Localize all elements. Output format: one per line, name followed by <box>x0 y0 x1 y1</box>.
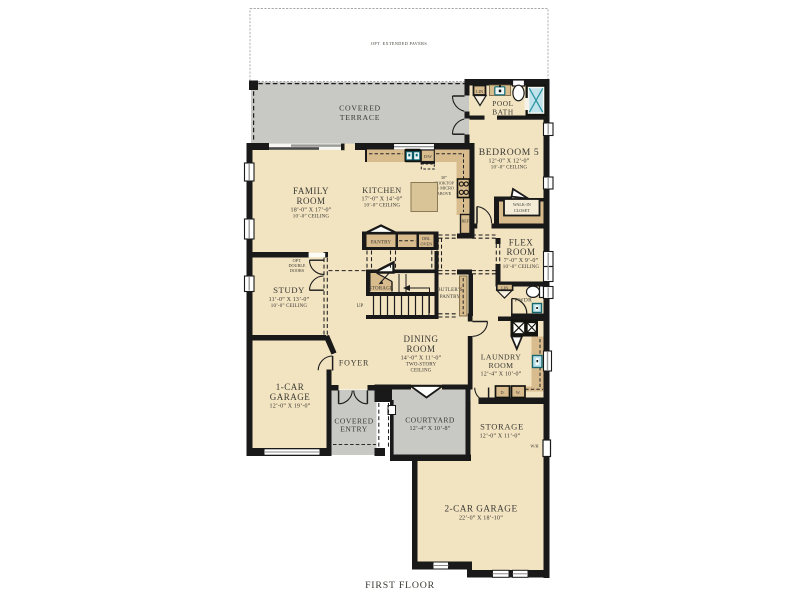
svg-text:BUTLER’S: BUTLER’S <box>437 288 463 293</box>
svg-text:12’-4” X 10’-8”: 12’-4” X 10’-8” <box>410 426 451 432</box>
svg-text:10’-0” CEILING: 10’-0” CEILING <box>503 265 540 270</box>
svg-text:10’-0” CEILING: 10’-0” CEILING <box>293 215 330 220</box>
svg-text:WALK-IN: WALK-IN <box>513 202 531 207</box>
svg-text:PANTRY: PANTRY <box>371 241 392 246</box>
svg-text:STORAGE: STORAGE <box>480 422 524 432</box>
svg-text:KITCHEN: KITCHEN <box>362 186 401 195</box>
svg-text:BATH: BATH <box>492 108 514 117</box>
svg-text:LIN: LIN <box>476 89 483 94</box>
svg-text:DOORS: DOORS <box>290 268 305 273</box>
svg-text:COURTYARD: COURTYARD <box>405 416 455 425</box>
svg-text:STUDY: STUDY <box>273 285 305 295</box>
svg-text:ROOM: ROOM <box>406 344 435 354</box>
svg-text:CEILING: CEILING <box>410 369 431 374</box>
svg-text:12’-4” X 10’-0”: 12’-4” X 10’-0” <box>481 372 522 378</box>
svg-text:22’-0” X 18’-10”: 22’-0” X 18’-10” <box>459 516 503 522</box>
svg-text:D.: D. <box>500 390 504 395</box>
svg-text:D/W: D/W <box>424 154 432 159</box>
svg-text:W/H: W/H <box>530 444 538 449</box>
svg-text:30”: 30” <box>441 175 447 180</box>
svg-text:FIRST FLOOR: FIRST FLOOR <box>365 580 435 591</box>
svg-text:10’-0” CEILING: 10’-0” CEILING <box>271 304 308 309</box>
svg-text:STORAGE: STORAGE <box>369 287 393 292</box>
svg-text:14’-0” X 11’-0”: 14’-0” X 11’-0” <box>401 356 442 362</box>
svg-text:ROOM: ROOM <box>506 247 535 257</box>
svg-text:ROOM: ROOM <box>489 361 514 370</box>
svg-text:DBL: DBL <box>422 236 431 241</box>
svg-text:12’-0” X 19’-0”: 12’-0” X 19’-0” <box>270 404 311 410</box>
svg-text:GARAGE: GARAGE <box>270 392 311 402</box>
svg-text:12’-0” X 12’-0”: 12’-0” X 12’-0” <box>489 159 530 165</box>
svg-text:CLOSET: CLOSET <box>514 208 530 213</box>
svg-text:TERRACE: TERRACE <box>340 113 380 122</box>
svg-text:PANTRY: PANTRY <box>440 295 461 300</box>
svg-text:DINING: DINING <box>404 334 439 344</box>
svg-text:TWO-STORY: TWO-STORY <box>406 363 437 368</box>
svg-text:1-CAR: 1-CAR <box>276 382 305 392</box>
svg-text:OPT. EXTENDED PAVERS: OPT. EXTENDED PAVERS <box>371 41 427 46</box>
svg-text:ROOM: ROOM <box>296 196 325 206</box>
svg-text:FOYER: FOYER <box>339 359 369 368</box>
svg-text:COVERED: COVERED <box>339 104 381 113</box>
svg-text:2-CAR GARAGE: 2-CAR GARAGE <box>444 504 517 514</box>
svg-text:W.: W. <box>516 390 521 395</box>
svg-text:LIN: LIN <box>501 285 508 290</box>
svg-text:PWDR: PWDR <box>515 298 532 304</box>
svg-text:ENTRY: ENTRY <box>340 425 367 434</box>
svg-text:11’-0” X 13’-0”: 11’-0” X 13’-0” <box>269 297 310 303</box>
svg-text:10’-0” CEILING: 10’-0” CEILING <box>364 204 401 209</box>
svg-text:REF: REF <box>461 219 469 224</box>
svg-text:OVEN: OVEN <box>420 241 432 246</box>
svg-text:17’-0” X 14’-0”: 17’-0” X 14’-0” <box>362 197 403 203</box>
svg-text:12’-0” X 11’-0”: 12’-0” X 11’-0” <box>480 434 521 440</box>
svg-text:FLEX: FLEX <box>509 238 534 248</box>
svg-text:10’-0” CEILING: 10’-0” CEILING <box>491 166 528 171</box>
svg-text:7’-0” X 9’-0”: 7’-0” X 9’-0” <box>504 258 539 264</box>
svg-text:UP: UP <box>357 304 364 309</box>
svg-text:ABOVE: ABOVE <box>437 191 452 196</box>
svg-text:FAMILY: FAMILY <box>293 186 329 196</box>
svg-text:BEDROOM 5: BEDROOM 5 <box>479 147 540 158</box>
svg-text:18’-0” X 17’-0”: 18’-0” X 17’-0” <box>291 208 332 214</box>
